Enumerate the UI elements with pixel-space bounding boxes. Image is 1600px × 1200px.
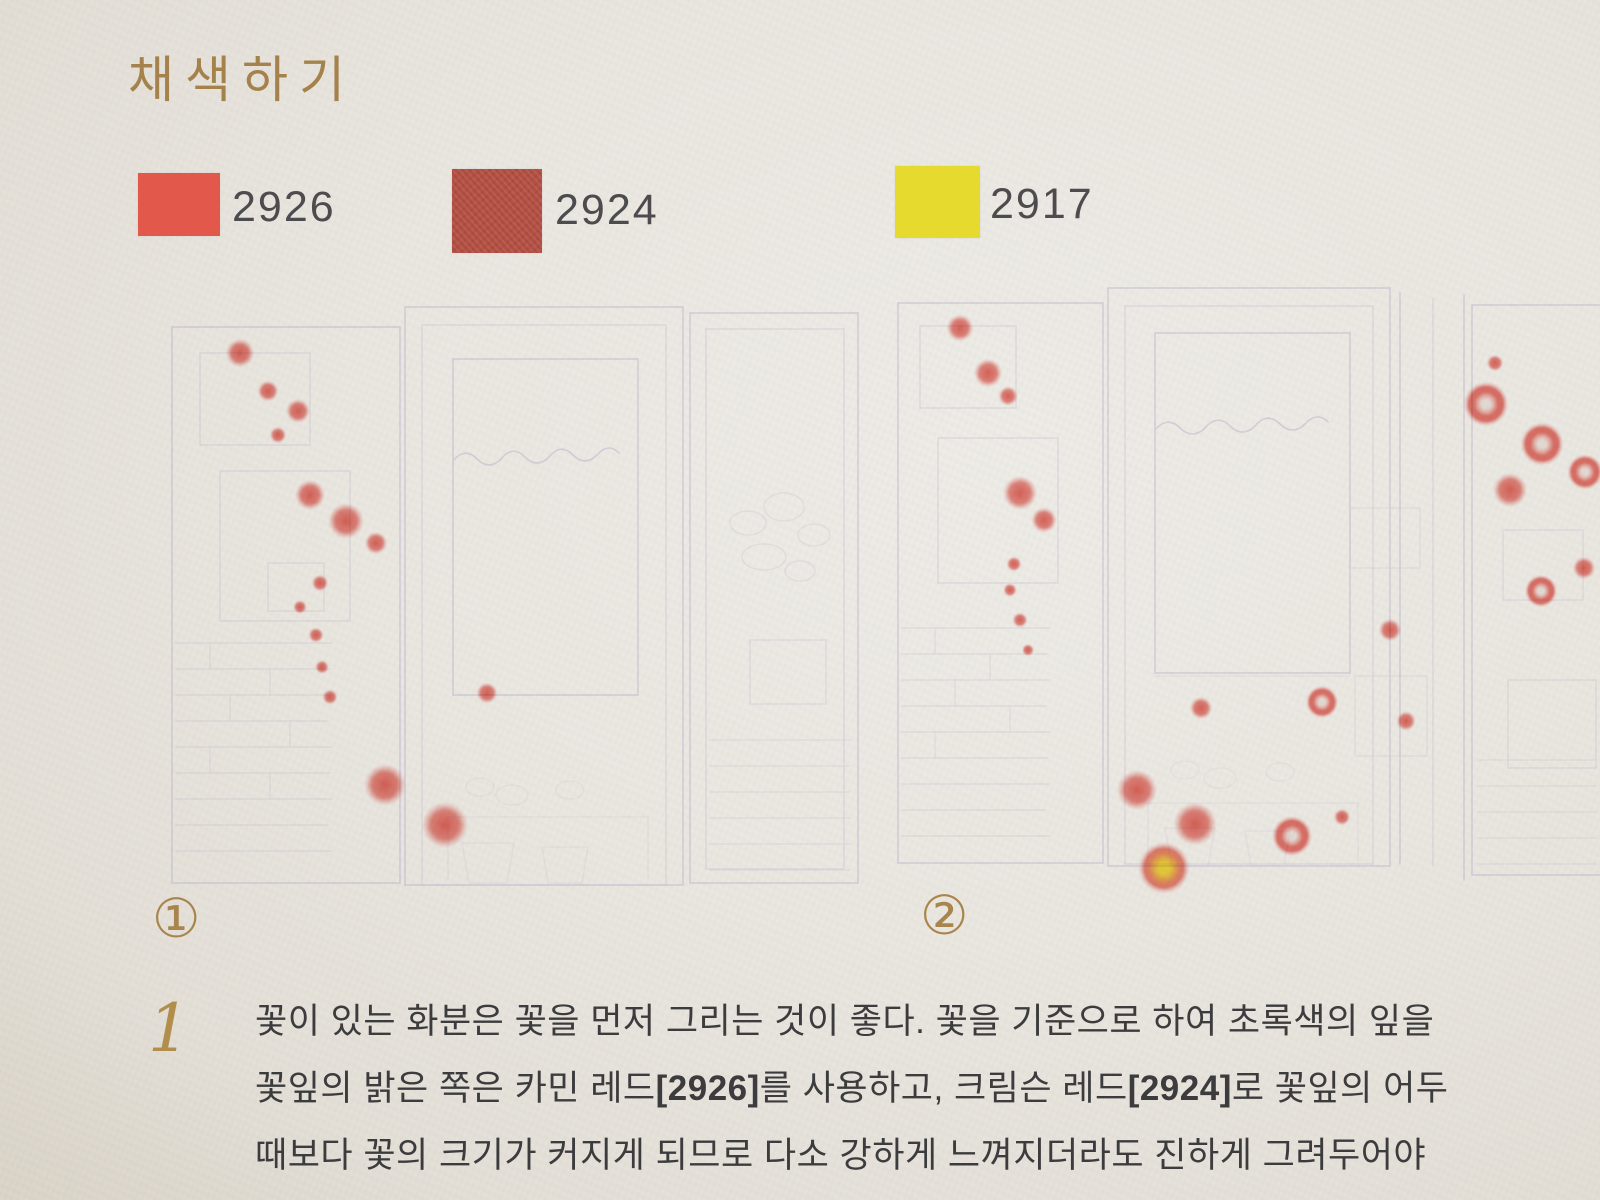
color-swatch-2924	[452, 169, 542, 253]
color-swatch-2926	[138, 173, 220, 236]
step-badge-2: ②	[920, 889, 968, 943]
color-code-ref: [2924]	[1128, 1069, 1232, 1108]
step-illustration-1	[150, 295, 865, 890]
color-code-2924: 2924	[555, 186, 659, 235]
step-illustration-3-partial	[1458, 285, 1600, 890]
color-code-ref: [2926]	[656, 1069, 760, 1108]
text-segment: 로 꽃잎의 어두	[1232, 1069, 1449, 1108]
text-segment: 를 사용하고, 크림슨 레드	[760, 1069, 1128, 1108]
instruction-line: 때보다 꽃의 크기가 커지게 되므로 다소 강하게 느껴지더라도 진하게 그려두…	[255, 1122, 1600, 1189]
step-badge-1: ①	[152, 892, 200, 946]
step-illustration-2	[880, 278, 1455, 888]
instruction-line: 꽃잎의 밝은 쪽은 카민 레드[2926]를 사용하고, 크림슨 레드[2924…	[255, 1055, 1600, 1122]
page-title: 채색하기	[128, 40, 356, 112]
instruction-line: 꽃이 있는 화분은 꽃을 먼저 그리는 것이 좋다. 꽃을 기준으로 하여 초록…	[255, 988, 1600, 1055]
instruction-number: 1	[148, 996, 190, 1062]
color-swatch-2917	[895, 166, 980, 238]
door-sketch	[880, 278, 1455, 888]
color-code-2926: 2926	[232, 183, 336, 232]
text-segment: 때보다 꽃의 크기가 커지게 되므로 다소 강하게 느껴지더라도 진하게 그려두…	[255, 1136, 1426, 1175]
instruction-text: 꽃이 있는 화분은 꽃을 먼저 그리는 것이 좋다. 꽃을 기준으로 하여 초록…	[255, 988, 1600, 1189]
text-segment: 꽃이 있는 화분은 꽃을 먼저 그리는 것이 좋다. 꽃을 기준으로 하여 초록…	[255, 1002, 1434, 1041]
book-page-photo: { "page": { "title": "채색하기" }, "palette"…	[0, 0, 1600, 1200]
text-segment: 꽃잎의 밝은 쪽은 카민 레드	[255, 1069, 656, 1108]
color-code-2917: 2917	[990, 180, 1094, 229]
